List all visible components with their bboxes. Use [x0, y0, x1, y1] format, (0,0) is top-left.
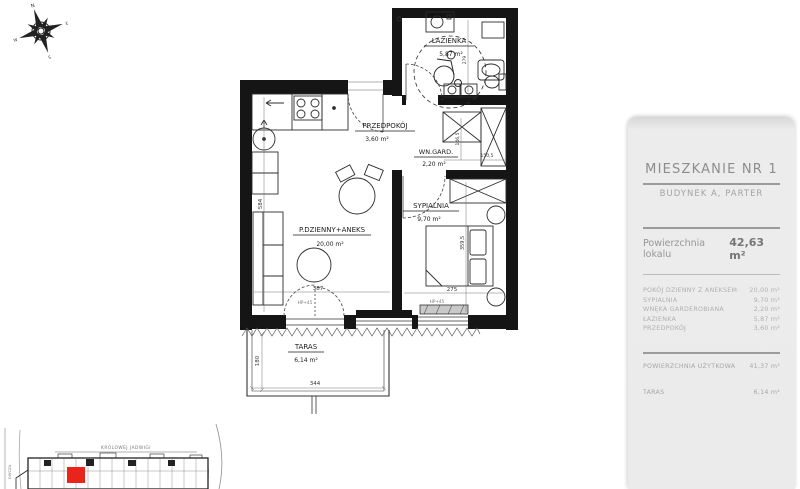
building-footprint: [16, 453, 208, 489]
dimension-labels: 584 387 275 359,5 150,5 146,5 279 344 18…: [255, 56, 494, 387]
dim-wardrobe-depth: 146,5: [455, 132, 461, 145]
floor-plan-drawing: N E S W: [0, 0, 640, 489]
room-area-list: POKÓJ DZIENNY Z ANEKSEM 20,00 m² SYPIALN…: [643, 286, 780, 334]
dining-table: [339, 178, 375, 214]
room-label-lazienka: ŁAZIENKA 5,87 m²: [424, 37, 474, 58]
pillow: [470, 230, 486, 255]
room-name: POKÓJ DZIENNY Z ANEKSEM: [643, 286, 737, 296]
coffee-table: [297, 248, 331, 282]
room-name: ŁAZIENKA: [643, 315, 676, 325]
total-area-row: Powierzchnia lokalu 42,63 m²: [628, 229, 795, 268]
room-name: PRZEDPOKÓJ: [643, 324, 686, 334]
svg-text:SYPIALNIA: SYPIALNIA: [413, 202, 449, 210]
dim-wardrobe-width: 150,5: [481, 153, 494, 159]
wardrobe-bedroom: [450, 179, 506, 203]
room-label-sypialnia: SYPIALNIA 9,70 m²: [403, 202, 459, 223]
room-row: ŁAZIENKA 5,87 m²: [643, 315, 780, 325]
street-top-label: KRÓLOWEJ JADWIGI: [101, 444, 151, 451]
room-area: 9,70 m²: [754, 296, 780, 306]
windows: [286, 317, 468, 325]
door-arcs: [284, 64, 445, 316]
toilet-tank: [499, 74, 506, 90]
room-area: 2,20 m²: [754, 305, 780, 315]
compass-north-label: N: [30, 3, 36, 10]
compass-icon: N E S W: [4, 0, 77, 68]
room-area: 3,60 m²: [754, 324, 780, 334]
compass-east-label: E: [65, 20, 69, 26]
terrace-area-row: TARAS 6,14 m²: [643, 388, 780, 398]
svg-text:ŁAZIENKA: ŁAZIENKA: [431, 37, 467, 45]
room-label-dzienny: P.DZIENNY+ANEKS 20,00 m²: [293, 226, 371, 248]
room-name: WNĘKA GARDEROBIANA: [643, 305, 724, 315]
highlighted-unit: [67, 467, 85, 483]
svg-text:9,70 m²: 9,70 m²: [417, 216, 441, 223]
dim-bedroom-width: 275: [447, 287, 458, 293]
pillow: [470, 259, 486, 284]
bathroom-fixtures: [397, 12, 506, 108]
nightstand: [487, 206, 505, 224]
divider: [643, 183, 780, 185]
svg-text:P.DZIENNY+ANEKS: P.DZIENNY+ANEKS: [299, 226, 366, 234]
dimension-lines: [250, 20, 505, 392]
usable-area-label: POWIERZCHNIA UŻYTKOWA: [643, 362, 735, 372]
room-label-taras: TARAS 6,14 m²: [288, 343, 324, 364]
svg-text:3,60 m²: 3,60 m²: [365, 136, 389, 143]
compass-south-label: S: [48, 54, 52, 60]
window-sill-living: HP+45: [298, 300, 313, 305]
dim-terrace-depth: 180: [255, 355, 261, 366]
site-plan: KRÓLOWEJ JADWIGI OWCZA WIGA: [5, 424, 222, 489]
insulation-hatch: [242, 328, 480, 336]
window-sill-bedroom: HP+45: [430, 299, 445, 304]
svg-text:20,00 m²: 20,00 m²: [316, 241, 344, 248]
svg-text:6,14 m²: 6,14 m²: [294, 357, 318, 364]
dim-living-depth: 584: [258, 198, 264, 209]
bathroom-cabinet: [482, 22, 504, 38]
radiator-bedroom: [420, 305, 468, 314]
dim-terrace-width: 344: [310, 381, 321, 387]
room-row: WNĘKA GARDEROBIANA 2,20 m²: [643, 305, 780, 315]
chair: [336, 165, 355, 182]
total-area-label: Powierzchnia lokalu: [643, 238, 729, 260]
room-label-przedpokoj: PRZEDPOKÓJ 3,60 m²: [355, 121, 415, 143]
room-label-wngard: WN.GARD. 2,20 m²: [414, 148, 458, 168]
svg-text:2,20 m²: 2,20 m²: [422, 161, 446, 168]
room-row: PRZEDPOKÓJ 3,60 m²: [643, 324, 780, 334]
dim-bedroom-depth: 359,5: [460, 236, 466, 250]
divider: [643, 274, 780, 275]
room-area: 5,87 m²: [754, 315, 780, 325]
dim-bathroom-depth: 279: [462, 56, 468, 65]
compass-west-label: W: [13, 37, 18, 43]
room-row: SYPIALNIA 9,70 m²: [643, 296, 780, 306]
terrace-outline: [247, 330, 389, 414]
svg-text:5,87 m²: 5,87 m²: [439, 51, 463, 58]
svg-text:TARAS: TARAS: [294, 343, 318, 351]
street-left-label: OWCZA: [7, 464, 12, 479]
nightstand: [487, 288, 505, 306]
room-row: POKÓJ DZIENNY Z ANEKSEM 20,00 m²: [643, 286, 780, 296]
divider: [643, 352, 780, 354]
chair: [364, 164, 383, 180]
dim-living-width: 387: [313, 286, 324, 292]
room-area: 20,00 m²: [749, 286, 780, 296]
apartment-title: MIESZKANIE NR 1: [628, 162, 795, 177]
building-subtitle: BUDYNEK A, PARTER: [628, 189, 795, 199]
info-panel: MIESZKANIE NR 1 BUDYNEK A, PARTER Powier…: [628, 118, 795, 489]
radiator-living: [356, 310, 412, 318]
sofa: [253, 212, 283, 305]
vent-arrow-icon: [266, 100, 284, 106]
kitchen-furniture: [252, 94, 348, 194]
bed: [426, 226, 493, 286]
terrace-area-label: TARAS: [643, 388, 664, 398]
toilet-bowl: [485, 76, 499, 88]
usable-area-row: POWIERZCHNIA UŻYTKOWA 41,37 m²: [643, 362, 780, 372]
room-name: SYPIALNIA: [643, 296, 677, 306]
total-area-value: 42,63 m²: [729, 236, 780, 262]
usable-area-section: POWIERZCHNIA UŻYTKOWA 41,37 m² TARAS 6,1…: [643, 362, 780, 397]
usable-area-value: 41,37 m²: [749, 362, 780, 372]
svg-text:WN.GARD.: WN.GARD.: [419, 148, 453, 156]
svg-text:PRZEDPOKÓJ: PRZEDPOKÓJ: [362, 121, 407, 130]
terrace-area-value: 6,14 m²: [754, 388, 780, 398]
